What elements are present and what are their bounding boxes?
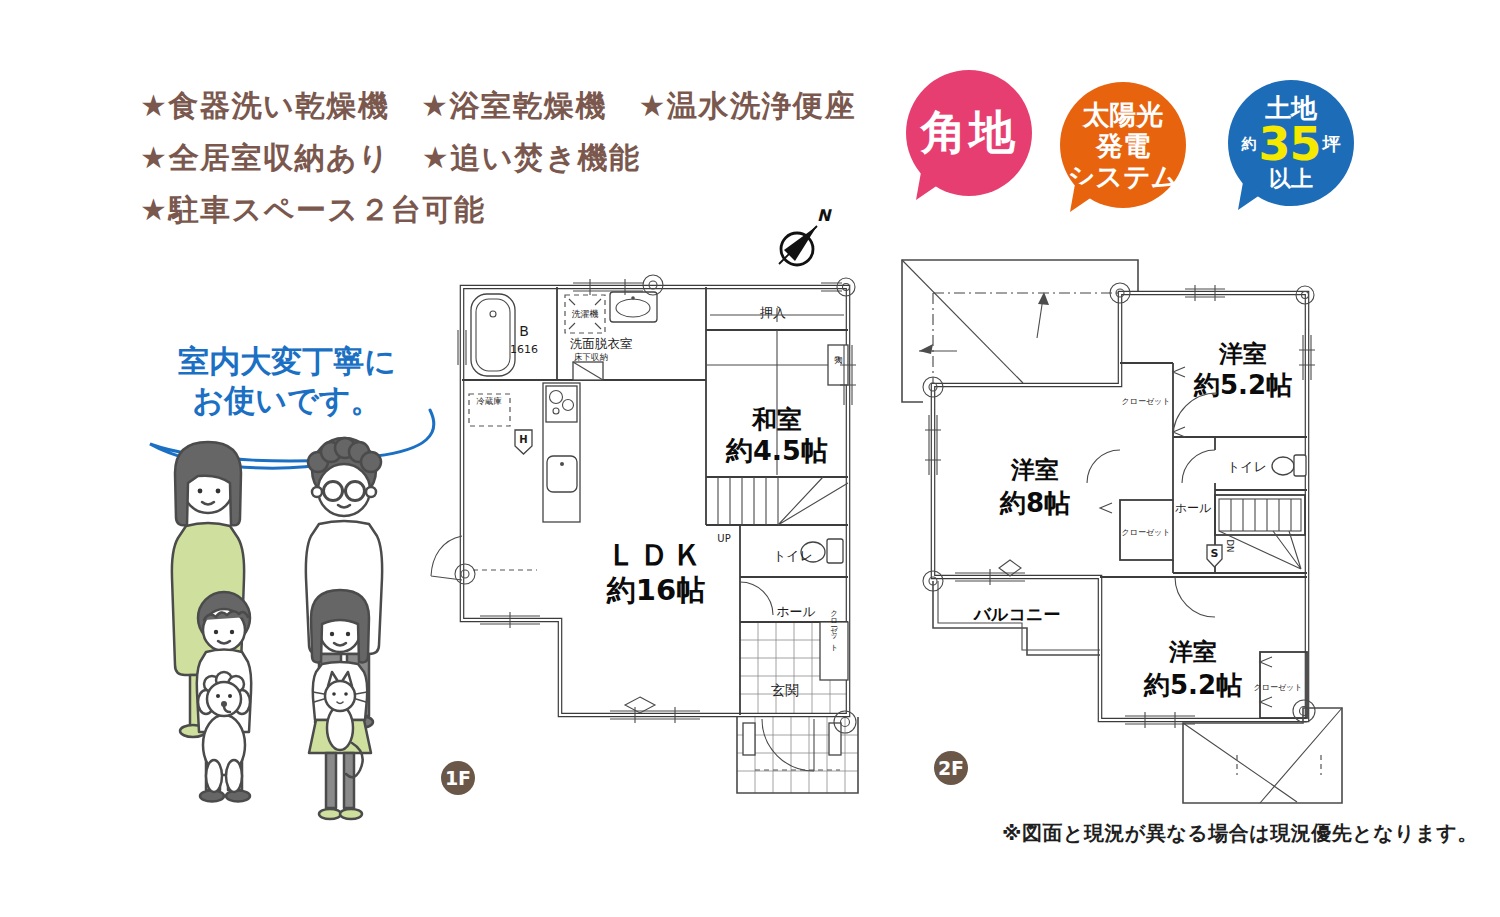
oshiire-door-lines (710, 308, 844, 322)
room-bottom-size-label: 約5.2帖 (1143, 670, 1242, 700)
corner-lot-badge: 角地 (906, 70, 1032, 196)
stairs-1f (718, 477, 848, 525)
washitsu-size-label: 約4.5帖 (725, 435, 828, 466)
bathtub-icon (471, 294, 515, 376)
fridge-label: 冷蔵庫 (476, 396, 502, 406)
room-top-label: 洋室 (1218, 340, 1267, 368)
solar-line-3: システム (1068, 161, 1179, 192)
feature-line-2: ★全居室収納あり ★追い焚き機能 (140, 138, 856, 190)
north-compass: N (765, 205, 835, 275)
floor2-badge: 2F (934, 751, 968, 785)
stairs-down-label: DN (1225, 540, 1235, 553)
land-size: 約 35 坪 (1241, 122, 1340, 166)
closet-bottom-label: クローゼット (1254, 683, 1303, 692)
stairs-s-label: S (1211, 547, 1219, 560)
roof-top-left (902, 260, 1138, 402)
porch-post-right (829, 723, 841, 755)
stairs-up-label: UP (717, 533, 730, 544)
ldk-label: ＬＤＫ (607, 537, 706, 572)
solar-badge: 太陽光 発電 システム (1060, 82, 1186, 208)
washroom-label: 洗面脱衣室 (570, 336, 633, 351)
land-number: 35 (1256, 122, 1322, 166)
balcony: バルコニー (933, 581, 1100, 655)
corner-lot-label: 角地 (921, 102, 1017, 164)
floor1-badge: 1F (441, 761, 475, 795)
north-label: N (817, 206, 832, 225)
stairs-symbol: S DN (1207, 540, 1235, 567)
solar-line-1: 太陽光 (1083, 99, 1164, 130)
glasses-icon (324, 482, 343, 501)
feature-line-1: ★食器洗い乾燥機 ★浴室乾燥機 ★温水洗浄便座 (140, 86, 856, 138)
land-size-badge: 土地 約 35 坪 以上 (1228, 80, 1354, 206)
roof-bottom-right (1183, 708, 1342, 803)
girl-figure (309, 590, 371, 819)
land-over-label: 以上 (1269, 166, 1313, 192)
kitchen-sink-icon (547, 456, 577, 492)
hall-label-2f: ホール (1175, 501, 1212, 515)
bath-label: B (519, 323, 529, 339)
floor2-badge-label: 2F (938, 757, 964, 779)
speech-line-1: 室内大変丁寧に (148, 342, 426, 381)
toilet-label-1f: トイレ (773, 548, 813, 563)
flyer-page: { "colors": { "feature_text": "#7a584e",… (0, 0, 1500, 917)
hall-label-1f: ホール (776, 604, 816, 619)
oshiire-label: 押入 (759, 305, 786, 320)
stove-icon (546, 386, 577, 422)
land-unit: 坪 (1323, 122, 1341, 166)
closet-top-label: クローゼット (1122, 397, 1171, 406)
water-heater-icon: H (515, 430, 532, 454)
vanity-sink-icon (610, 292, 657, 322)
bath-size-label: 1616 (510, 343, 538, 356)
room-left-label: 洋室 (1010, 456, 1059, 484)
room-top-size-label: 約5.2帖 (1193, 370, 1292, 400)
entrance-label: 玄関 (771, 682, 799, 698)
closet-mid-label: クローゼット (1122, 528, 1171, 537)
disclaimer-text: ※図面と現況が異なる場合は現況優先となります。 (1002, 820, 1478, 847)
feature-line-3: ★駐車スペース２台可能 (140, 190, 856, 242)
solar-line-2: 発電 (1096, 130, 1150, 161)
family-illustration (148, 428, 420, 853)
water-heater-label: H (519, 434, 527, 445)
washitsu-label: 和室 (751, 405, 802, 434)
ldk-size-label: 約16帖 (606, 573, 705, 607)
porch-post-left (743, 723, 755, 755)
feature-list: ★食器洗い乾燥機 ★浴室乾燥機 ★温水洗浄便座 ★全居室収納あり ★追い焚き機能… (140, 86, 856, 242)
stairs-2f (1219, 499, 1301, 569)
kitchen-counter (543, 383, 580, 522)
room-left-size-label: 約8帖 (999, 488, 1070, 518)
toilet-icon-2f (1272, 455, 1306, 476)
floor1-badge-label: 1F (445, 767, 471, 789)
boy-figure (197, 592, 251, 802)
room-bottom-label: 洋室 (1168, 638, 1217, 666)
toilet-label-2f: トイレ (1227, 459, 1267, 474)
balcony-label: バルコニー (973, 604, 1061, 624)
underfloor-storage-label: 床下収納 (574, 352, 608, 362)
entrance-closet-label: クローゼット (829, 605, 838, 652)
floor1-plan: クローゼット 物入 B 1616 洗濯機 洗面脱衣室 床下収納 冷蔵庫 H (425, 270, 875, 805)
washer-label: 洗濯機 (572, 309, 599, 319)
floor2-plan: S DN クローゼット クローゼット クローゼット 洋室 約5.2帖 洋室 約8… (885, 250, 1375, 815)
land-approx: 約 (1241, 122, 1256, 166)
dog-illustration (198, 672, 250, 792)
light-symbol-2f (999, 560, 1021, 576)
